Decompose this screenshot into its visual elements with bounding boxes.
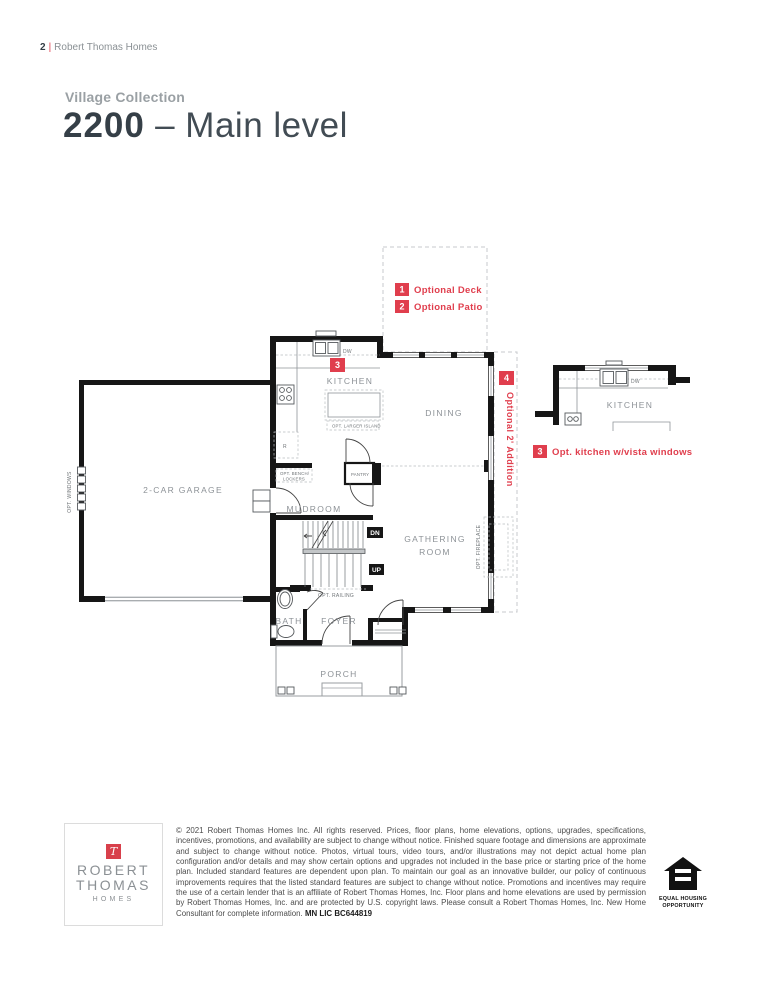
opt-bench-label-2: LOCKERS xyxy=(283,477,305,482)
garage-label: 2-CAR GARAGE xyxy=(143,485,223,495)
inset-badge-3-num: 3 xyxy=(537,447,542,457)
optional-kitchen-inset: DW KITCHEN 3 Opt. kitchen w/vista window… xyxy=(533,361,692,458)
inset-island xyxy=(613,422,670,431)
dn-label: DN xyxy=(370,530,380,537)
opt-windows-garage xyxy=(78,467,86,510)
inset-kitchen-label: KITCHEN xyxy=(607,400,653,410)
fridge-label: R xyxy=(283,444,287,450)
page-number: 2 xyxy=(40,42,46,53)
legend-label-2: Optional Patio xyxy=(414,302,483,313)
opt-windows-label: OPT. WINDOWS xyxy=(67,471,73,513)
logo-line-homes: HOMES xyxy=(65,896,162,903)
kitchen-fixtures: DW R OPT. LARGER ISLAND 3 xyxy=(274,331,383,458)
logo-line-thomas: THOMAS xyxy=(65,878,162,893)
opt-fireplace-label: OPT. FIREPLACE xyxy=(476,524,482,569)
pantry-label: PANTRY xyxy=(351,472,369,477)
optional-deck-area xyxy=(383,247,487,352)
floor-plan: 1 Optional Deck 2 Optional Patio 4 Optio… xyxy=(60,240,710,710)
badge-4-num: 4 xyxy=(504,373,509,383)
porch-label: PORCH xyxy=(320,669,357,679)
kitchen-label: KITCHEN xyxy=(327,376,373,386)
garage-door-opening xyxy=(105,597,243,600)
brand-name: Robert Thomas Homes xyxy=(54,42,157,53)
mudroom-details: OPT. BENCH/ LOCKERS PANTRY xyxy=(276,469,369,482)
legend-badge-1-num: 1 xyxy=(399,285,404,295)
header-divider: | xyxy=(49,42,52,53)
eho-text-1: EQUAL HOUSING xyxy=(654,896,712,902)
optional-addition-strip: 4 Optional 2' Addition xyxy=(494,352,517,612)
kitchen-window-box xyxy=(316,331,336,336)
opt-bench-label-1: OPT. BENCH/ xyxy=(280,471,310,476)
pantry-door xyxy=(346,439,370,463)
legend-badge-2-num: 2 xyxy=(399,302,404,312)
up-label: UP xyxy=(372,567,382,574)
equal-housing-logo: EQUAL HOUSING OPPORTUNITY xyxy=(654,857,712,909)
logo-monogram: T xyxy=(106,844,121,859)
page-header: 2|Robert Thomas Homes xyxy=(40,42,157,53)
model-number: 2200 xyxy=(63,106,145,145)
opt-larger-island-label: OPT. LARGER ISLAND xyxy=(332,424,381,429)
badge-3-num: 3 xyxy=(335,360,340,370)
license-number: MN LIC BC644819 xyxy=(305,909,372,918)
level-name: – Main level xyxy=(155,106,348,145)
collection-title: Village Collection xyxy=(65,89,185,105)
inset-range xyxy=(565,413,581,425)
brand-logo: T ROBERT THOMAS HOMES xyxy=(64,823,163,926)
bath-label: BATH xyxy=(275,616,302,626)
dw-label: DW xyxy=(343,349,352,355)
equal-housing-icon xyxy=(664,857,702,890)
optional-addition-label: Optional 2' Addition xyxy=(505,392,515,487)
gathering-label-1: GATHERING xyxy=(404,534,466,544)
range xyxy=(277,385,294,404)
page-title: 2200 – Main level xyxy=(63,106,348,146)
dining-top-windows xyxy=(393,353,484,358)
logo-line-robert: ROBERT xyxy=(65,863,162,878)
mudroom-hall-door xyxy=(350,483,373,506)
inset-dw-label: DW xyxy=(631,379,640,385)
kitchen-island: OPT. LARGER ISLAND xyxy=(325,390,383,430)
mudroom-label: MUDROOM xyxy=(287,504,342,514)
page: 2|Robert Thomas Homes Village Collection… xyxy=(0,0,768,994)
plan-legend: 1 Optional Deck 2 Optional Patio xyxy=(395,283,483,313)
foyer-label: FOYER xyxy=(321,616,357,626)
opt-railing-label: OPT. RAILING xyxy=(318,593,354,599)
legend-label-1: Optional Deck xyxy=(414,285,482,296)
dining-label: DINING xyxy=(425,408,463,418)
gathering-label-2: ROOM xyxy=(419,547,451,557)
legal-text: © 2021 Robert Thomas Homes Inc. All righ… xyxy=(176,826,646,918)
legal-disclaimer: © 2021 Robert Thomas Homes Inc. All righ… xyxy=(176,826,646,919)
inset-note: Opt. kitchen w/vista windows xyxy=(552,447,692,458)
eho-text-2: OPPORTUNITY xyxy=(654,903,712,909)
closet-shelves xyxy=(375,630,406,633)
